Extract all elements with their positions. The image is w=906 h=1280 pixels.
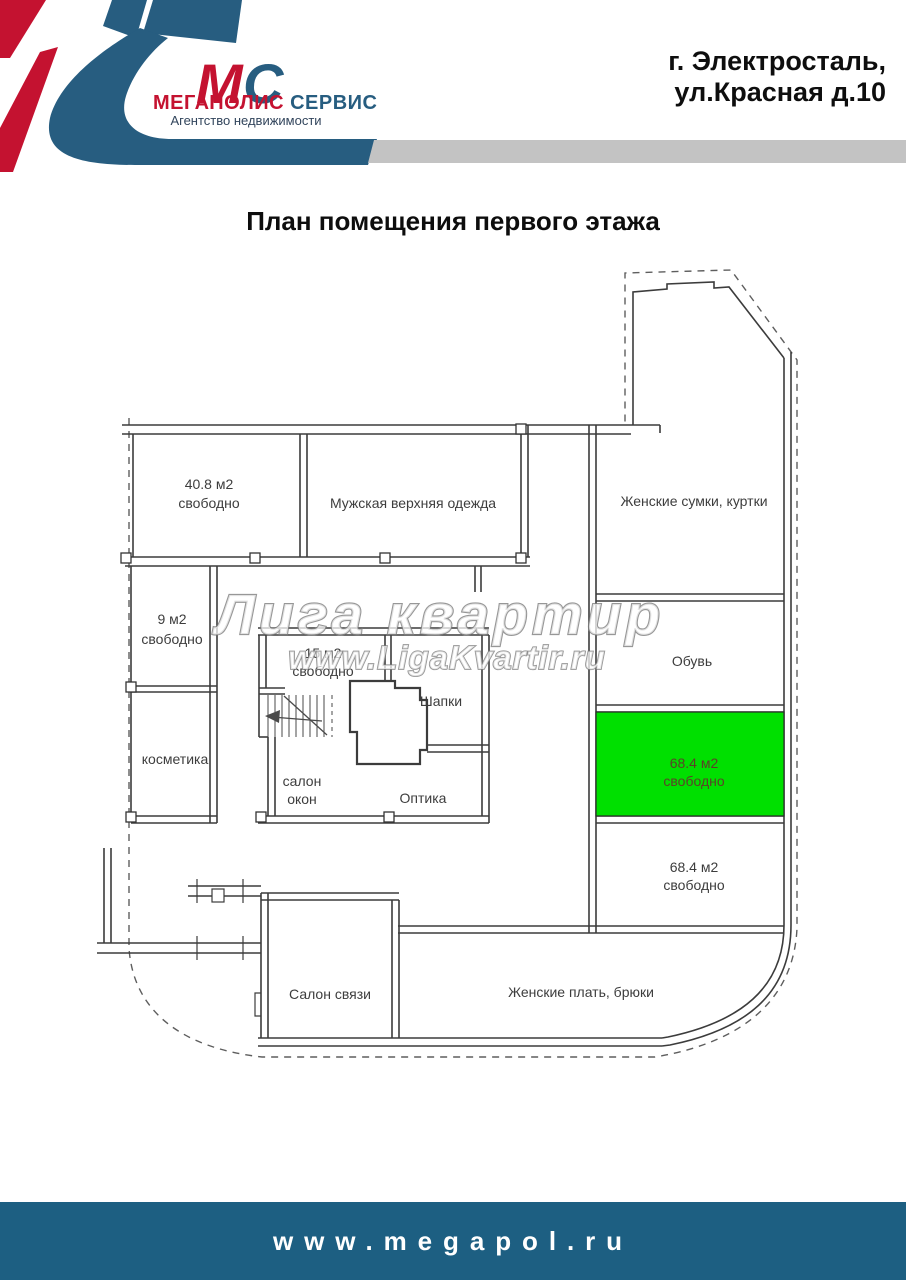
flyer-page: М С МЕГАПОЛИС СЕРВИС Агентство недвижимо…: [0, 0, 906, 1280]
watermark-brand: Лига квартир: [212, 583, 665, 647]
room-label-phone-salon: Салон связи: [289, 986, 371, 1002]
room-label-green-684-area: 68.4 м2: [670, 755, 719, 771]
room-label-cosmetics: косметика: [142, 751, 209, 767]
footer-url: www.megapol.ru: [0, 1202, 906, 1280]
room-label-hats: Шапки: [420, 693, 462, 709]
room-label-womens-dresses: Женские плать, брюки: [508, 984, 654, 1000]
room-label-green-684-status: свободно: [663, 773, 724, 789]
footer-bar: www.megapol.ru: [0, 1202, 906, 1280]
room-label-mens-outerwear: Мужская верхняя одежда: [330, 495, 496, 511]
room-label-shoes: Обувь: [672, 653, 712, 669]
room-label-40-8-status: свободно: [178, 495, 239, 511]
room-label-9-status: свободно: [141, 631, 202, 647]
room-label-40-8-area: 40.8 м2: [185, 476, 234, 492]
floor-plan: 40.8 м2 свободно Мужская верхняя одежда …: [0, 0, 906, 1280]
room-label-684-area: 68.4 м2: [670, 859, 719, 875]
stairs-direction-arrow: [265, 710, 280, 723]
room-label-9-area: 9 м2: [157, 611, 186, 627]
watermark-url: www.LigaKvartir.ru: [288, 639, 606, 676]
structural-core: [350, 681, 427, 764]
room-label-optics: Оптика: [400, 790, 447, 806]
watermark: Лига квартир www.LigaKvartir.ru: [212, 583, 665, 676]
room-label-womens-bags: Женские сумки, куртки: [620, 493, 767, 509]
room-label-window-salon-1: салон: [283, 773, 322, 789]
room-label-window-salon-2: окон: [287, 791, 317, 807]
room-label-684-status: свободно: [663, 877, 724, 893]
entrance-door-symbol: [212, 889, 224, 902]
